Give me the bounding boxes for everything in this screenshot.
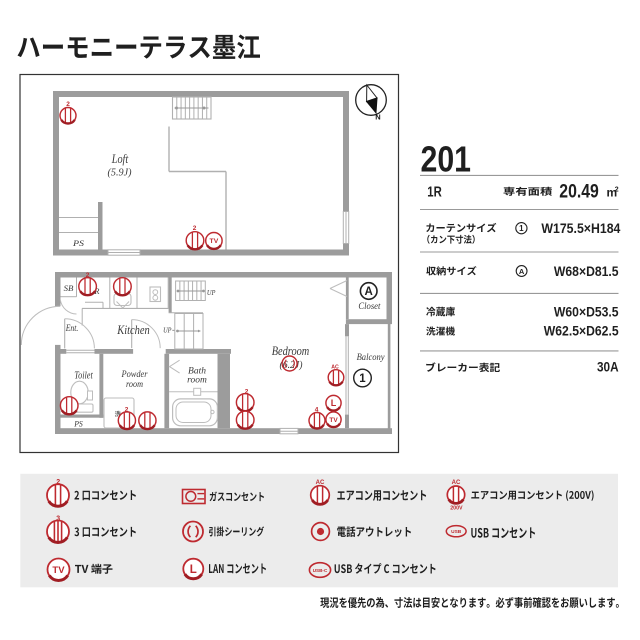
svg-text:30A: 30A <box>597 359 619 374</box>
svg-text:SB: SB <box>64 283 74 293</box>
svg-text:USB-C: USB-C <box>313 568 328 573</box>
svg-text:Balcony: Balcony <box>357 353 386 363</box>
svg-text:2: 2 <box>193 225 197 232</box>
svg-text:2: 2 <box>245 389 249 396</box>
svg-text:A: A <box>365 286 373 298</box>
svg-text:Ent.: Ent. <box>65 323 78 333</box>
svg-text:W175.5×H184: W175.5×H184 <box>541 220 620 236</box>
svg-text:TV: TV <box>329 417 338 424</box>
svg-text:1: 1 <box>359 373 366 385</box>
svg-text:W68×D81.5: W68×D81.5 <box>554 263 619 279</box>
svg-text:Toilet: Toilet <box>74 371 93 382</box>
svg-text:PS: PS <box>72 238 85 248</box>
svg-text:TV: TV <box>210 238 219 245</box>
svg-text:W60×D53.5: W60×D53.5 <box>554 303 619 319</box>
svg-text:room: room <box>126 380 143 390</box>
svg-text:L: L <box>190 564 197 576</box>
svg-text:201: 201 <box>421 138 472 179</box>
svg-text:UP: UP <box>207 289 216 297</box>
svg-text:room: room <box>187 376 207 386</box>
svg-text:4: 4 <box>315 407 319 414</box>
svg-text:1R: 1R <box>427 184 442 201</box>
svg-text:A: A <box>519 267 525 276</box>
svg-text:1: 1 <box>519 224 524 233</box>
svg-text:200V: 200V <box>450 506 463 512</box>
svg-text:AC: AC <box>331 364 339 370</box>
svg-text:UP: UP <box>163 326 172 334</box>
svg-text:L: L <box>331 398 337 408</box>
svg-text:Kitchen: Kitchen <box>116 322 149 337</box>
svg-text:Loft: Loft <box>111 152 129 166</box>
svg-text:2: 2 <box>615 187 619 194</box>
svg-text:3: 3 <box>56 515 60 522</box>
svg-text:2: 2 <box>86 272 90 279</box>
svg-text:AC: AC <box>452 480 461 486</box>
svg-text:AC: AC <box>316 480 325 486</box>
svg-text:W62.5×D62.5: W62.5×D62.5 <box>544 323 619 339</box>
svg-text:TV: TV <box>52 565 65 576</box>
svg-text:PS: PS <box>73 418 83 428</box>
svg-text:N: N <box>375 113 380 122</box>
svg-text:USB: USB <box>451 529 462 535</box>
svg-text:2: 2 <box>56 479 60 486</box>
svg-text:2: 2 <box>125 407 129 414</box>
svg-text:20.49: 20.49 <box>559 181 599 202</box>
svg-text:Closet: Closet <box>358 302 380 312</box>
svg-text:(5.9J): (5.9J) <box>108 168 133 179</box>
svg-text:Powder: Powder <box>121 370 148 380</box>
svg-text:2: 2 <box>66 101 70 108</box>
